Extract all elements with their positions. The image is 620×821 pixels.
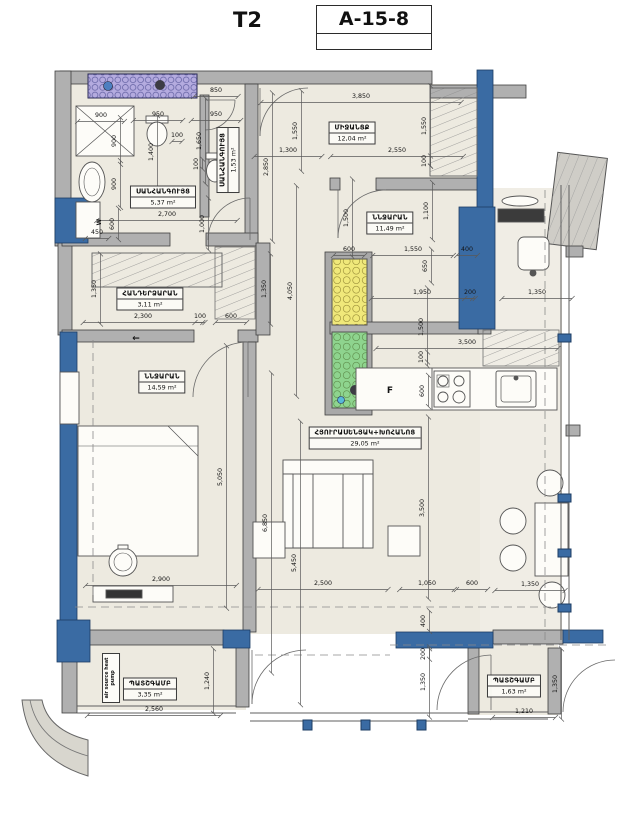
- svg-text:5,050: 5,050: [217, 468, 224, 486]
- svg-text:100: 100: [194, 313, 206, 320]
- side-table: [253, 522, 285, 558]
- svg-text:1,550: 1,550: [404, 246, 422, 253]
- plan-drawing: 8509009509501001,6501,4009009001002,7001…: [0, 0, 620, 821]
- svg-text:2,700: 2,700: [158, 211, 176, 218]
- window-bottom-main: [250, 713, 468, 730]
- ac-unit: [498, 209, 544, 222]
- room-name: ՍԱՆՀԱՆԳՈՒՅՑ: [131, 187, 195, 198]
- svg-text:2,550: 2,550: [388, 147, 406, 154]
- svg-text:1,500: 1,500: [343, 209, 350, 227]
- svg-text:1,210: 1,210: [515, 708, 533, 715]
- dimension-label: 200: [420, 646, 432, 661]
- svg-text:1,550: 1,550: [421, 117, 428, 135]
- room-label-bathroom-main: ՍԱՆՀԱՆԳՈՒՅՑ5,37 m²: [130, 186, 196, 209]
- svg-text:3,500: 3,500: [458, 339, 476, 346]
- svg-text:900: 900: [111, 178, 118, 190]
- svg-text:600: 600: [109, 218, 116, 230]
- room-label-balcony-left: ՊԱՏՇԳԱՄԲ3,35 m²: [123, 678, 177, 701]
- svg-text:600: 600: [343, 246, 355, 253]
- svg-text:4,050: 4,050: [287, 282, 294, 300]
- svg-text:1,950: 1,950: [413, 289, 431, 296]
- svg-text:5,450: 5,450: [291, 554, 298, 572]
- svg-text:6,850: 6,850: [262, 514, 269, 532]
- sink-oval: [79, 162, 105, 202]
- shaft-yellow: [332, 259, 367, 325]
- svg-text:1,400: 1,400: [148, 143, 155, 161]
- heat-pump-label: air source heat pump: [102, 653, 120, 703]
- svg-text:850: 850: [210, 87, 222, 94]
- svg-text:1,350: 1,350: [552, 675, 559, 693]
- nightstand: [60, 372, 79, 424]
- room-label-dressing: ՀԱՆԴԵՐՁԱՐԱՆ3,11 m²: [116, 288, 183, 311]
- svg-text:600: 600: [419, 385, 426, 397]
- svg-text:←: ←: [132, 334, 140, 344]
- exterior-terrace-edge: [22, 700, 88, 776]
- svg-text:1,650: 1,650: [196, 132, 203, 150]
- floor-plan: T2 A-15-8: [0, 0, 620, 821]
- room-area: 11,49 m²: [367, 224, 412, 234]
- svg-text:W: W: [96, 218, 103, 225]
- svg-text:450: 450: [91, 229, 103, 236]
- svg-text:1,350: 1,350: [91, 280, 98, 298]
- room-area: 14,59 m²: [139, 383, 184, 393]
- door-balcony-left: [252, 650, 306, 704]
- svg-text:600: 600: [466, 580, 478, 587]
- room-area: 1,63 m²: [488, 687, 540, 697]
- room-area: 1,53 m²: [229, 128, 239, 192]
- svg-text:1,000: 1,000: [199, 215, 206, 233]
- svg-text:1,500: 1,500: [418, 318, 425, 336]
- room-label-living-kitchen: ՀՅՈՒՐԱՍԵՆՅԱԿ+ԽՈՀԱՆՈՑ29,05 m²: [309, 427, 422, 450]
- door-terrace: [563, 660, 615, 712]
- svg-text:100: 100: [421, 155, 428, 167]
- svg-text:400: 400: [420, 615, 427, 627]
- svg-text:1,350: 1,350: [261, 280, 268, 298]
- room-area: 29,05 m²: [310, 439, 421, 449]
- sofa: [283, 460, 373, 548]
- svg-text:2,900: 2,900: [152, 576, 170, 583]
- room-name: ՀՅՈՒՐԱՍԵՆՅԱԿ+ԽՈՀԱՆՈՑ: [310, 428, 421, 439]
- room-area: 5,37 m²: [131, 198, 195, 208]
- room-area: 3,11 m²: [117, 300, 182, 310]
- room-name: ՀԱՆԴԵՐՁԱՐԱՆ: [117, 289, 182, 300]
- closet-lilac-strip: [88, 74, 197, 98]
- svg-text:1,350: 1,350: [420, 673, 427, 691]
- svg-text:100: 100: [418, 351, 425, 363]
- room-label-bedroom-2: ՆՆՋԱՐԱՆ11,49 m²: [366, 212, 413, 235]
- svg-text:1,350: 1,350: [521, 581, 539, 588]
- marker-label: W: [96, 218, 103, 225]
- bed: [78, 426, 198, 556]
- room-label-balcony-right: ՊԱՏՇԳԱՄԲ1,63 m²: [487, 675, 541, 698]
- kitchen-sink: [496, 371, 536, 407]
- svg-text:950: 950: [152, 111, 164, 118]
- svg-text:650: 650: [422, 260, 429, 272]
- marker-label: F: [387, 386, 393, 396]
- svg-text:2,500: 2,500: [314, 580, 332, 587]
- room-area: 3,35 m²: [124, 690, 176, 700]
- svg-text:F: F: [387, 386, 393, 396]
- svg-text:200: 200: [464, 289, 476, 296]
- tv-console: [93, 586, 173, 602]
- svg-text:900: 900: [95, 112, 107, 119]
- svg-text:600: 600: [225, 313, 237, 320]
- svg-text:2,850: 2,850: [263, 158, 270, 176]
- room-name: ՆՆՋԱՐԱՆ: [367, 213, 412, 224]
- svg-text:100: 100: [193, 158, 200, 170]
- svg-text:100: 100: [171, 132, 183, 139]
- svg-text:2,300: 2,300: [134, 313, 152, 320]
- room-area: 12,04 m²: [330, 134, 375, 144]
- svg-text:1,300: 1,300: [279, 147, 297, 154]
- armchair: [388, 526, 420, 556]
- room-label-hallway: ՄԻՋԱՆՑՔ12,04 m²: [329, 122, 376, 145]
- marker-label: ←: [132, 334, 140, 344]
- room-name: ՊԱՏՇԳԱՄԲ: [488, 676, 540, 687]
- svg-text:950: 950: [210, 111, 222, 118]
- svg-text:2,560: 2,560: [145, 706, 163, 713]
- svg-text:1,100: 1,100: [423, 202, 430, 220]
- vent-fan: [502, 196, 538, 206]
- room-label-bathroom-small: ՍԱՆՀԱՆԳՈՒՅՑ1,53 m²: [217, 127, 240, 193]
- svg-text:3,500: 3,500: [419, 499, 426, 517]
- svg-text:900: 900: [111, 135, 118, 147]
- room-label-bedroom-1: ՆՆՋԱՐԱՆ14,59 m²: [138, 371, 185, 394]
- svg-text:1,350: 1,350: [528, 289, 546, 296]
- boiler: [518, 237, 549, 276]
- room-name: ՄԻՋԱՆՑՔ: [330, 123, 375, 134]
- room-name: ՆՆՋԱՐԱՆ: [139, 372, 184, 383]
- room-name: ՊԱՏՇԳԱՄԲ: [124, 679, 176, 690]
- room-name: ՍԱՆՀԱՆԳՈՒՅՑ: [218, 128, 229, 192]
- svg-text:1,550: 1,550: [292, 122, 299, 140]
- svg-text:200: 200: [420, 648, 427, 660]
- exterior-stair-block: [547, 152, 608, 249]
- svg-text:1,240: 1,240: [204, 672, 211, 690]
- svg-text:3,850: 3,850: [352, 93, 370, 100]
- svg-text:400: 400: [461, 246, 473, 253]
- svg-text:1,050: 1,050: [418, 580, 436, 587]
- stove: [434, 371, 470, 407]
